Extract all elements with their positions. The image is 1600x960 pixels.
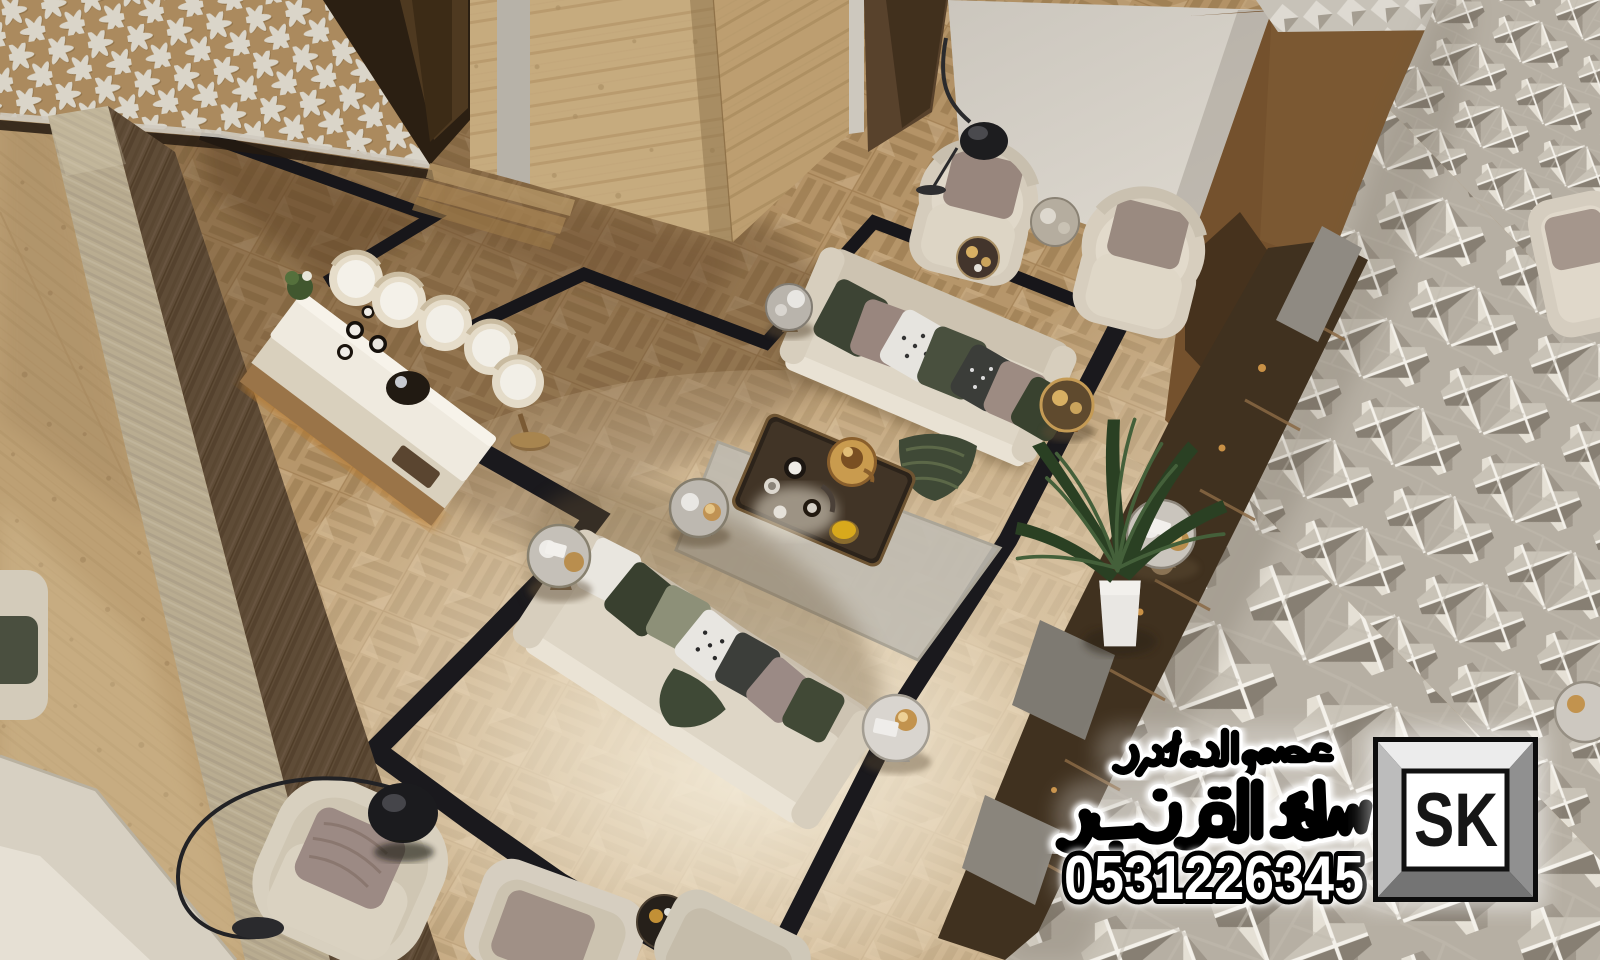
svg-text:0531226345: 0531226345 (1064, 844, 1364, 913)
svg-text:SK: SK (1414, 778, 1498, 863)
